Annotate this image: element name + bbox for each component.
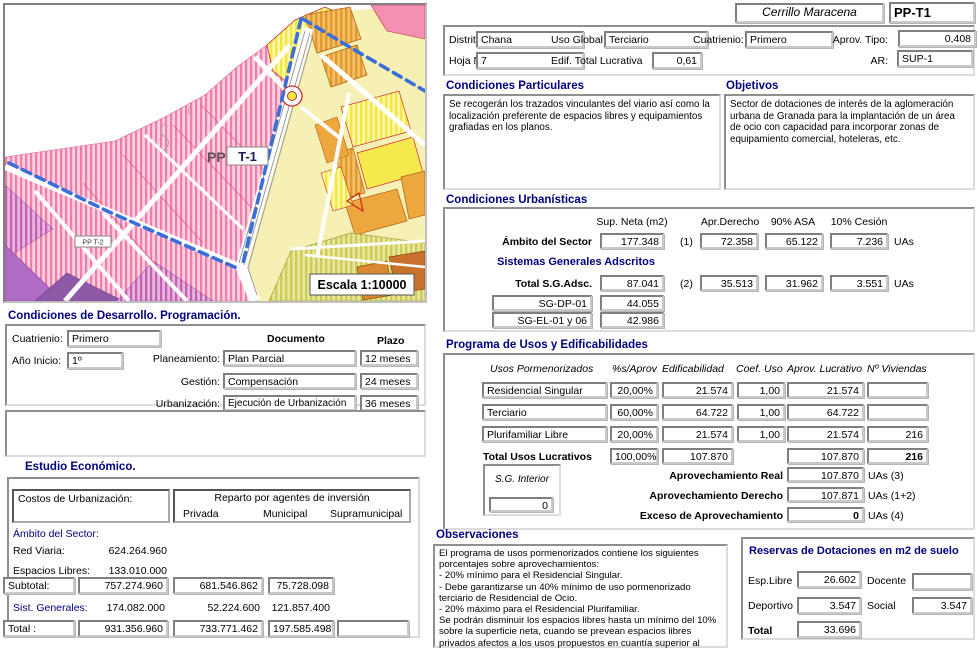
uso-row-edif[interactable]: 21.574: [662, 426, 733, 442]
desarrollo-title: Condiciones de Desarrollo. Programación.: [8, 310, 241, 322]
sg-row-value[interactable]: 44.055: [600, 295, 664, 311]
sg-row-value[interactable]: 42.986: [600, 312, 664, 328]
total-aprov-field[interactable]: 107.870: [787, 448, 864, 464]
agente-municipal: Municipal: [263, 508, 307, 520]
ficha-urbanistica: PP T-1 PP T-2 Escala 1:10000 Cerrillo Ma…: [0, 0, 980, 648]
ambito-sup-field[interactable]: 177.348: [600, 233, 664, 249]
col-90-asa: 90% ASA: [760, 216, 826, 228]
objetivos-text: Sector de dotaciones de interés de la ag…: [730, 99, 968, 145]
ambito-economico-label: Ámbito del Sector:: [13, 528, 99, 540]
map-pp-t2-label: PP T-2: [82, 240, 103, 247]
sg-row-name[interactable]: SG-DP-01: [492, 295, 592, 311]
uso-row-name[interactable]: Terciario: [482, 404, 607, 420]
sg-interior-label: S.G. Interior: [483, 474, 561, 486]
uso-row-aprov[interactable]: 21.574: [787, 426, 864, 442]
ref-2: (2): [680, 278, 693, 290]
ambito-cesion-field[interactable]: 7.236: [830, 233, 888, 249]
aprovechamiento-real-label: Aprovechamiento Real: [628, 470, 783, 482]
planeamiento-label: Planeamiento:: [145, 353, 220, 365]
col-edificabilidad: Edificabilidad: [662, 363, 724, 375]
col-num-viviendas: Nº Viviendas: [867, 363, 927, 375]
anio-inicio-label: Año Inicio:: [12, 355, 61, 367]
social-field[interactable]: 3.547: [912, 597, 972, 614]
red-viaria-value: 624.264.960: [87, 545, 167, 557]
uso-global-label: Uso Global: [551, 34, 603, 46]
col-coef-uso: Coef. Uso: [736, 363, 783, 375]
uso-row-viv[interactable]: 216: [867, 426, 928, 442]
uso-row-pct[interactable]: 60,00%: [610, 404, 658, 420]
observaciones-title: Observaciones: [436, 529, 518, 541]
edif-total-field[interactable]: 0,61: [652, 52, 702, 69]
col-10-cesion: 10% Cesión: [824, 216, 894, 228]
plazo-header: Plazo: [377, 335, 404, 347]
uso-row-pct[interactable]: 20,00%: [610, 382, 658, 398]
ref-1: (1): [680, 236, 693, 248]
cuatrienio-dev-field[interactable]: Primero: [67, 330, 161, 347]
documento-header: Documento: [267, 333, 325, 345]
sist-generales-label: Sist. Generales:: [13, 602, 88, 614]
ambito-apr-field[interactable]: 72.358: [700, 233, 758, 249]
uso-row-coef[interactable]: 1,00: [737, 382, 785, 398]
aprovechamiento-derecho-unit: UAs (1+2): [868, 490, 916, 502]
col-apr-derecho: Apr.Derecho: [695, 216, 765, 228]
zoning-map: PP T-1 PP T-2 Escala 1:10000: [5, 5, 425, 301]
aprov-tipo-label: Aprov. Tipo:: [820, 34, 888, 46]
cuatrienio-dev-label: Cuatrienio:: [12, 333, 63, 345]
uas-label-1: UAs: [894, 236, 914, 248]
uso-row-viv[interactable]: [867, 382, 928, 398]
uas-label-2: UAs: [894, 278, 914, 290]
aprovechamiento-derecho-field[interactable]: 107.871: [787, 487, 864, 502]
edif-total-label: Edif. Total Lucrativa: [551, 55, 642, 67]
total-edif-field[interactable]: 107.870: [662, 448, 733, 464]
agente-privada: Privada: [183, 508, 219, 520]
sistemas-generales-title: Sistemas Generales Adscritos: [497, 256, 655, 268]
cuatrienio-label: Cuatrienio:: [693, 34, 744, 46]
esp-libre-label: Esp.Libre: [748, 575, 792, 587]
sector-name-box: Cerrillo Maracena: [735, 3, 884, 23]
gestion-label: Gestión:: [145, 376, 220, 388]
reservas-total-label: Total: [748, 625, 772, 637]
planeamiento-doc-field[interactable]: Plan Parcial: [223, 350, 356, 366]
docente-label: Docente: [867, 575, 906, 587]
total-viviendas-field[interactable]: 216: [867, 448, 928, 464]
condiciones-particulares-text: Se recogerán los trazados vinculantes de…: [449, 99, 712, 134]
zoning-map-panel: PP T-1 PP T-2 Escala 1:10000: [3, 3, 427, 303]
empty-panel: [5, 410, 426, 457]
total-sg-asa-field[interactable]: 31.962: [765, 275, 823, 291]
uso-row-viv[interactable]: [867, 404, 928, 420]
sistgen-privada-value: 174.082.000: [85, 602, 165, 614]
total-sg-cesion-field[interactable]: 3.551: [830, 275, 888, 291]
exceso-aprovechamiento-unit: UAs (4): [868, 510, 904, 522]
espacios-libres-value: 133.010.000: [87, 565, 167, 577]
reservas-title: Reservas de Dotaciones en m2 de suelo: [749, 545, 959, 557]
total-privada-field[interactable]: 931.356.960: [78, 620, 168, 637]
sector-code-box: PP-T1: [889, 2, 975, 23]
uso-row-aprov[interactable]: 21.574: [787, 382, 864, 398]
map-t1-label: T-1: [238, 149, 257, 164]
total-extra-field[interactable]: [337, 620, 409, 637]
total-sg-sup-field[interactable]: 87.041: [600, 275, 664, 291]
social-label: Social: [867, 600, 896, 612]
total-municipal-field[interactable]: 733.771.462: [173, 620, 263, 637]
observaciones-text: El programa de usos pormenorizados conti…: [439, 548, 722, 648]
urbanizacion-label: Urbanización:: [145, 398, 220, 410]
col-sup-neta: Sup. Neta (m2): [583, 216, 681, 228]
subtotal-label-box: Subtotal:: [3, 577, 75, 594]
aprovechamiento-derecho-label: Aprovechamiento Derecho: [600, 490, 783, 502]
reservas-total-field[interactable]: 33.696: [797, 621, 861, 638]
col-pct-aprov: %s/Aprov: [612, 363, 657, 375]
estudio-title: Estudio Económico.: [25, 461, 136, 473]
red-viaria-label: Red Viaria:: [13, 545, 65, 557]
objetivos-title: Objetivos: [726, 80, 778, 92]
map-scale-label: Escala 1:10000: [318, 278, 407, 292]
uso-row-coef[interactable]: 1,00: [737, 404, 785, 420]
ambito-sector-label: Ámbito del Sector: [470, 236, 592, 248]
deportivo-label: Deportivo: [748, 600, 793, 612]
ambito-asa-field[interactable]: 65.122: [765, 233, 823, 249]
urbanizacion-plazo-field[interactable]: 36 meses: [360, 395, 418, 411]
deportivo-field[interactable]: 3.547: [797, 597, 861, 614]
exceso-aprovechamiento-field[interactable]: 0: [787, 507, 864, 522]
uso-row-coef[interactable]: 1,00: [737, 426, 785, 442]
programa-title: Programa de Usos y Edificabilidades: [446, 339, 648, 351]
total-label-box: Total :: [3, 620, 75, 637]
anio-inicio-field[interactable]: 1º: [67, 352, 123, 369]
total-sg-adsc-label: Total S.G.Adsc.: [470, 278, 592, 290]
total-supramunicipal-field[interactable]: 197.585.498: [268, 620, 334, 637]
col-usos: Usos Pormenorizados: [490, 363, 593, 375]
total-sg-apr-field[interactable]: 35.513: [700, 275, 758, 291]
gestion-plazo-field[interactable]: 24 meses: [360, 373, 418, 389]
esp-libre-field[interactable]: 26.602: [797, 571, 861, 588]
col-aprov-lucrativo: Aprov. Lucrativo: [787, 363, 862, 375]
sg-row-name[interactable]: SG-EL-01 y 06: [492, 312, 592, 328]
sg-interior-field[interactable]: 0: [489, 497, 553, 512]
subtotal-privada-field[interactable]: 757.274.960: [78, 577, 168, 594]
ar-label: AR:: [858, 55, 888, 67]
condiciones-particulares-title: Condiciones Particulares: [446, 80, 584, 92]
sistgen-municipal-value: 52.224.600: [180, 602, 260, 614]
uso-row-name[interactable]: Plurifamiliar Libre: [482, 426, 607, 442]
aprov-tipo-field[interactable]: 0,408: [898, 30, 976, 47]
espacios-libres-label: Espacios Libres:: [13, 565, 90, 577]
urbanisticas-title: Condiciones Urbanísticas: [446, 194, 587, 206]
gestion-doc-field[interactable]: Compensación: [223, 373, 356, 389]
urbanizacion-doc-field[interactable]: Ejecución de Urbanización: [223, 395, 356, 411]
uso-row-aprov[interactable]: 64.722: [787, 404, 864, 420]
total-pct-field[interactable]: 100,00%: [610, 448, 658, 464]
uso-row-pct[interactable]: 20,00%: [610, 426, 658, 442]
subtotal-municipal-field[interactable]: 681.546.862: [173, 577, 263, 594]
uso-row-edif[interactable]: 21.574: [662, 382, 733, 398]
agente-supramunicipal: Supramunicipal: [330, 508, 402, 520]
aprovechamiento-real-unit: UAs (3): [868, 470, 904, 482]
planeamiento-plazo-field[interactable]: 12 meses: [360, 350, 418, 366]
subtotal-supramunicipal-field[interactable]: 75.728.098: [268, 577, 334, 594]
total-usos-label: Total Usos Lucrativos: [483, 451, 592, 463]
uso-row-edif[interactable]: 64.722: [662, 404, 733, 420]
exceso-aprovechamiento-label: Exceso de Aprovechamiento: [600, 510, 783, 522]
map-pp-label: PP: [207, 149, 226, 165]
uso-row-name[interactable]: Residencial Singular: [482, 382, 607, 398]
sistgen-supramunicipal-value: 121.857.400: [252, 602, 330, 614]
ar-field[interactable]: SUP-1: [897, 50, 973, 67]
reparto-title: Reparto por agentes de inversión: [173, 492, 411, 504]
docente-field[interactable]: [912, 573, 972, 590]
costos-label: Costos de Urbanización:: [18, 493, 132, 505]
aprovechamiento-real-field[interactable]: 107.870: [787, 467, 864, 482]
